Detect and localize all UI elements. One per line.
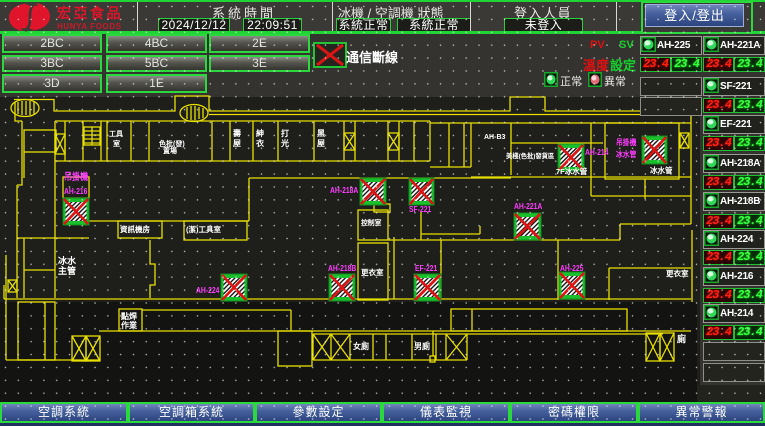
svg-text:冰水管: 冰水管 — [650, 165, 673, 175]
svg-text:工具: 工具 — [109, 129, 123, 138]
svg-text:紳: 紳 — [256, 128, 264, 138]
svg-text:打: 打 — [281, 128, 289, 138]
svg-text:更衣室: 更衣室 — [361, 267, 384, 277]
svg-text:女廁: 女廁 — [353, 341, 369, 351]
svg-text:男廁: 男廁 — [414, 341, 430, 351]
svg-text:更衣室: 更衣室 — [666, 268, 689, 278]
svg-text:黑: 黑 — [317, 128, 325, 138]
svg-text:美棧(色批)發貨區: 美棧(色批)發貨區 — [506, 151, 555, 160]
svg-text:冰水: 冰水 — [58, 255, 77, 266]
svg-text:壽: 壽 — [233, 128, 241, 138]
svg-text:作業: 作業 — [121, 320, 138, 330]
svg-text:AH-B3: AH-B3 — [484, 134, 505, 141]
svg-text:屋: 屋 — [233, 138, 241, 148]
svg-text:HUNYA FOODS: HUNYA FOODS — [57, 22, 122, 31]
svg-text:主管: 主管 — [58, 265, 76, 276]
svg-text:光: 光 — [280, 138, 289, 148]
svg-text:衣: 衣 — [256, 138, 264, 148]
svg-text:資訊機房: 資訊機房 — [120, 224, 150, 234]
svg-text:7F冰水管: 7F冰水管 — [556, 166, 588, 176]
svg-text:控制室: 控制室 — [361, 218, 382, 227]
svg-text:屋: 屋 — [317, 138, 325, 148]
svg-text:色批(發): 色批(發) — [159, 139, 185, 148]
svg-text:室: 室 — [113, 139, 120, 148]
svg-text:宏亞食品: 宏亞食品 — [57, 5, 123, 21]
svg-text:廁: 廁 — [677, 333, 686, 344]
svg-text:(潔)工具室: (潔)工具室 — [186, 224, 221, 234]
svg-text:點焊: 點焊 — [121, 311, 137, 321]
svg-text:置場: 置場 — [163, 146, 177, 155]
